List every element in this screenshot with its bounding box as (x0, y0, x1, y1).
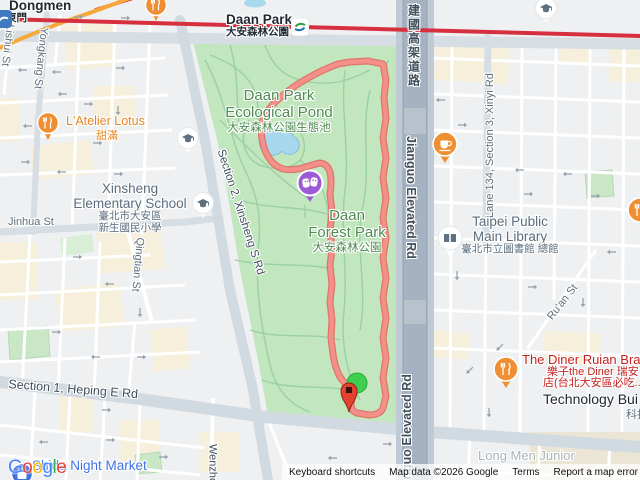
terms-link[interactable]: Terms (505, 467, 546, 478)
google-letter: G (8, 457, 22, 478)
road-label-jianguo-zh: 建國高架道路 (406, 4, 419, 88)
station-label-daan-park[interactable]: Daan Park (226, 12, 292, 27)
restaurant-pin-right-icon[interactable] (626, 196, 640, 232)
forest-park-label[interactable]: Daan Forest Park 大安森林公園 (287, 208, 407, 254)
library-zh: 臺北市立圖書館 總館 (450, 244, 570, 256)
route-start-end-marker (333, 368, 373, 416)
pond-label-line1: Daan Park (204, 88, 354, 105)
poi-label-library[interactable]: Taipei Public Main Library 臺北市立圖書館 總館 (450, 214, 570, 256)
google-logo[interactable]: Google (8, 457, 66, 479)
map-data-text: Map data ©2026 Google (382, 467, 505, 478)
restaurant-pin-top-icon[interactable] (144, 0, 168, 23)
school-zh2: 新生國民小學 (50, 223, 210, 235)
library-pin-icon[interactable] (436, 224, 464, 260)
google-letter: g (42, 457, 52, 478)
pond-label-zh: 大安森林公園生態池 (204, 122, 354, 135)
google-map-canvas[interactable]: Dongmen 東門 Daan Park 大安森林公園 Lishui St Yo… (0, 0, 640, 480)
poi-label-technology-zh: 科技 (626, 409, 640, 421)
google-letter: o (32, 457, 42, 478)
street-label-wenzhou: Wenzhou St (206, 444, 218, 480)
diner-restaurant-pin-icon[interactable] (492, 355, 520, 391)
school-line1: Xinsheng (50, 181, 210, 196)
forest-park-line2: Forest Park (287, 225, 407, 242)
poi-label-latelier[interactable]: L'Atelier Lotus (66, 114, 145, 128)
coffee-pin-icon[interactable] (431, 130, 459, 166)
google-letter: o (22, 457, 32, 478)
poi-label-technology-building[interactable]: Technology Bui (543, 392, 638, 408)
school-pin-icon[interactable] (176, 126, 200, 156)
station-label-daan-park-zh[interactable]: 大安森林公園 (226, 27, 289, 39)
keyboard-shortcuts-button[interactable]: Keyboard shortcuts (282, 467, 382, 478)
daan-park-metro-logo-icon[interactable] (291, 18, 309, 36)
poi-label-xinsheng-school[interactable]: Xinsheng Elementary School 臺北市大安區 新生國民小學 (50, 181, 210, 235)
dongmen-metro-logo-icon[interactable] (0, 10, 12, 28)
latelier-restaurant-pin-icon[interactable] (36, 111, 60, 141)
street-label-jinhua: Jinhua St (8, 216, 54, 228)
pond-label-line2: Ecological Pond (204, 105, 354, 122)
attribution-bar: Keyboard shortcuts Map data ©2026 Google… (282, 464, 640, 480)
poi-label-diner-zh2[interactable]: 店(台北大安區必吃... (543, 377, 640, 389)
report-map-error-link[interactable]: Report a map error (547, 467, 640, 478)
poi-label-latelier-zh[interactable]: 甜滿 (96, 130, 118, 142)
street-label-xinyi: Lane 134, Section 3, Xinyi Rd (484, 73, 496, 218)
library-line2: Main Library (450, 229, 570, 244)
theater-pin-icon[interactable] (294, 167, 328, 209)
google-letter: e (56, 457, 66, 478)
xinsheng-school-pin-icon[interactable] (191, 191, 215, 221)
library-line1: Taipei Public (450, 214, 570, 229)
school-pin-topright-icon[interactable] (534, 0, 558, 26)
forest-park-zh: 大安森林公園 (287, 242, 407, 255)
pond-label[interactable]: Daan Park Ecological Pond 大安森林公園生態池 (204, 88, 354, 134)
school-line2: Elementary School (50, 196, 210, 211)
forest-park-line1: Daan (287, 208, 407, 225)
poi-label-longmen-school: Long Men Junior (478, 449, 575, 464)
